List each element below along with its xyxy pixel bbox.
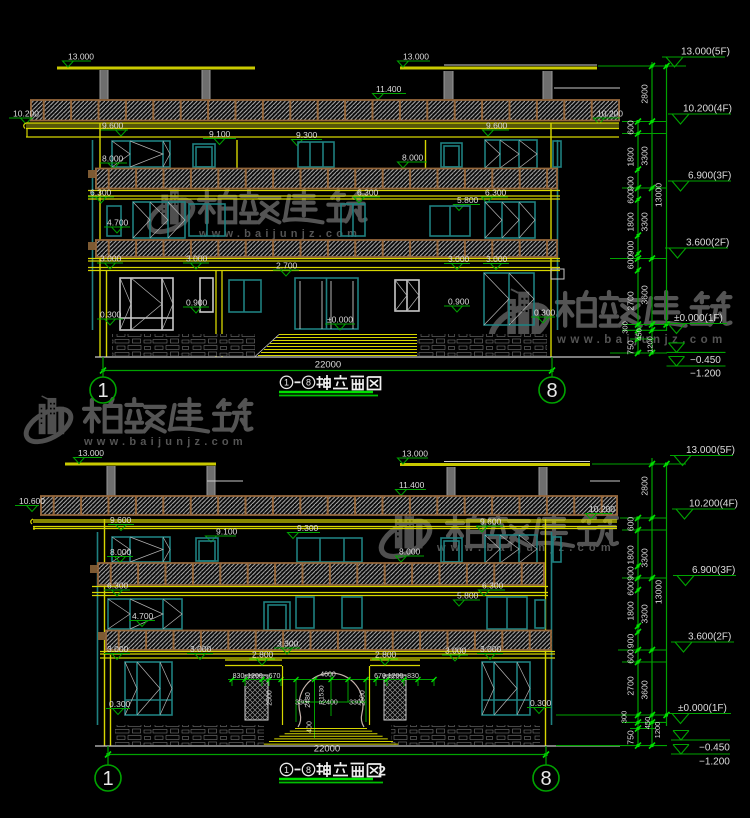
svg-text:1200: 1200 [247, 673, 263, 680]
svg-text:3.000: 3.000 [445, 646, 467, 656]
svg-text:3300: 3300 [640, 548, 650, 567]
svg-text:9.600: 9.600 [486, 121, 508, 131]
svg-text:8: 8 [306, 765, 311, 775]
svg-text:600: 600 [626, 649, 636, 664]
svg-text:1: 1 [284, 765, 289, 775]
svg-text:10.200: 10.200 [13, 109, 39, 119]
svg-text:6.300: 6.300 [357, 188, 379, 198]
svg-text:5.800: 5.800 [457, 591, 479, 601]
svg-text:670: 670 [269, 673, 281, 680]
svg-text:3.300: 3.300 [277, 639, 299, 649]
svg-text:600: 600 [626, 120, 636, 135]
svg-text:13.000: 13.000 [403, 52, 429, 62]
svg-text:2700: 2700 [626, 676, 636, 695]
svg-text:13.000: 13.000 [402, 449, 428, 459]
svg-text:3.000: 3.000 [186, 254, 208, 264]
svg-text:6.300: 6.300 [482, 581, 504, 591]
svg-text:13.000(5F): 13.000(5F) [681, 47, 730, 58]
svg-text:6.300: 6.300 [90, 188, 112, 198]
svg-text:13.000: 13.000 [68, 52, 94, 62]
svg-text:−0.450: −0.450 [690, 355, 721, 366]
svg-text:10.200(4F): 10.200(4F) [689, 499, 738, 510]
svg-text:11.400: 11.400 [399, 480, 425, 490]
svg-text:4.700: 4.700 [107, 218, 129, 228]
svg-text:300: 300 [620, 711, 629, 724]
svg-text:900: 900 [626, 241, 636, 256]
svg-text:2.800: 2.800 [252, 650, 274, 660]
svg-text:1800: 1800 [626, 545, 636, 564]
svg-text:450: 450 [635, 328, 644, 341]
svg-text:3.600(2F): 3.600(2F) [688, 632, 731, 643]
svg-text:670: 670 [374, 673, 386, 680]
svg-text:3.000: 3.000 [107, 644, 129, 654]
svg-text:6.900(3F): 6.900(3F) [688, 171, 731, 182]
svg-text:6.900(3F): 6.900(3F) [692, 565, 735, 576]
svg-text:6.300: 6.300 [107, 581, 129, 591]
svg-text:8.000: 8.000 [402, 153, 424, 163]
svg-text:22000: 22000 [315, 360, 341, 371]
svg-text:750: 750 [626, 730, 636, 745]
svg-text:2.700: 2.700 [276, 261, 298, 271]
svg-text:9.600: 9.600 [480, 517, 502, 527]
svg-text:13.000: 13.000 [78, 448, 104, 458]
svg-text:3300: 3300 [640, 212, 650, 231]
svg-text:−1.200: −1.200 [690, 369, 721, 380]
svg-text:3300: 3300 [640, 146, 650, 165]
svg-text:0.300: 0.300 [530, 698, 552, 708]
svg-text:300: 300 [621, 321, 630, 334]
svg-text:830: 830 [407, 673, 419, 680]
svg-text:1200: 1200 [388, 673, 404, 680]
svg-text:10.600: 10.600 [19, 496, 45, 506]
svg-text:0.300: 0.300 [100, 310, 122, 320]
svg-text:3.000: 3.000 [190, 644, 212, 654]
svg-text:±0.000(1F): ±0.000(1F) [674, 313, 723, 324]
svg-text:4.700: 4.700 [132, 611, 154, 621]
svg-text:1200: 1200 [646, 336, 655, 353]
svg-text:10.200(4F): 10.200(4F) [683, 104, 732, 115]
svg-text:600: 600 [626, 581, 636, 596]
svg-text:1800: 1800 [626, 212, 636, 231]
svg-text:9.300: 9.300 [296, 130, 318, 140]
svg-text:3600: 3600 [640, 680, 650, 699]
svg-text:1200: 1200 [653, 722, 662, 739]
svg-text:8: 8 [540, 768, 551, 790]
svg-text:900: 900 [626, 634, 636, 649]
svg-text:450: 450 [643, 717, 652, 730]
svg-text:3300: 3300 [640, 604, 650, 623]
svg-text:0.300: 0.300 [109, 699, 131, 709]
svg-text:0.900: 0.900 [186, 298, 208, 308]
svg-text:1: 1 [102, 768, 113, 790]
svg-text:600: 600 [626, 255, 636, 270]
svg-text:±0.000(1F): ±0.000(1F) [678, 703, 727, 714]
svg-text:3.000: 3.000 [448, 254, 470, 264]
svg-text:2800: 2800 [640, 476, 650, 495]
svg-text:2: 2 [378, 763, 386, 779]
svg-text:900: 900 [626, 176, 636, 191]
svg-text:9.100: 9.100 [216, 527, 238, 537]
svg-text:0.300: 0.300 [534, 308, 556, 318]
svg-text:8: 8 [546, 380, 557, 402]
svg-text:900: 900 [626, 566, 636, 581]
svg-text:2500: 2500 [267, 690, 274, 706]
svg-text:13000: 13000 [654, 580, 664, 604]
svg-text:−0.450: −0.450 [699, 743, 730, 754]
svg-text:3.600(2F): 3.600(2F) [686, 238, 729, 249]
svg-text:−1.200: −1.200 [699, 757, 730, 768]
svg-text:600: 600 [626, 189, 636, 204]
svg-text:2.800: 2.800 [375, 650, 397, 660]
svg-text:2500: 2500 [360, 690, 367, 706]
svg-text:4600: 4600 [320, 672, 336, 679]
svg-text:3.000: 3.000 [480, 644, 502, 654]
svg-text:830: 830 [233, 673, 245, 680]
svg-text:3600: 3600 [640, 285, 650, 304]
svg-text:5.800: 5.800 [457, 195, 479, 205]
svg-text:1: 1 [97, 380, 108, 402]
svg-text:8: 8 [306, 378, 311, 388]
svg-text:3.000: 3.000 [100, 254, 122, 264]
svg-text:9.600: 9.600 [110, 515, 132, 525]
svg-text:13000: 13000 [654, 183, 664, 207]
svg-text:±0.000: ±0.000 [327, 315, 353, 325]
svg-text:2480: 2480 [305, 692, 312, 708]
svg-text:9.600: 9.600 [102, 121, 124, 131]
svg-text:2800: 2800 [640, 84, 650, 103]
svg-text:22000: 22000 [314, 744, 340, 755]
svg-text:13.000(5F): 13.000(5F) [686, 445, 735, 456]
svg-text:www.baijunjz.com: www.baijunjz.com [83, 436, 247, 448]
svg-text:www.baijunjz.com: www.baijunjz.com [198, 228, 361, 240]
svg-text:1800: 1800 [626, 147, 636, 166]
svg-text:9.100: 9.100 [209, 129, 231, 139]
svg-text:8.000: 8.000 [399, 547, 421, 557]
svg-text:8.000: 8.000 [102, 154, 124, 164]
svg-text:1: 1 [284, 378, 289, 388]
svg-text:R1530: R1530 [319, 685, 326, 705]
svg-text:2700: 2700 [626, 291, 636, 310]
svg-text:0.900: 0.900 [448, 297, 470, 307]
svg-text:9.300: 9.300 [297, 523, 319, 533]
svg-text:750: 750 [626, 340, 636, 355]
svg-text:11.400: 11.400 [376, 84, 402, 94]
svg-text:www.baijunjz.com: www.baijunjz.com [436, 542, 616, 554]
svg-text:1800: 1800 [626, 601, 636, 620]
svg-text:8.000: 8.000 [110, 547, 132, 557]
svg-text:6.300: 6.300 [485, 188, 507, 198]
svg-text:600: 600 [626, 517, 636, 532]
svg-text:10.200: 10.200 [597, 109, 623, 119]
svg-text:10.200: 10.200 [589, 504, 615, 514]
svg-text:3.000: 3.000 [486, 254, 508, 264]
